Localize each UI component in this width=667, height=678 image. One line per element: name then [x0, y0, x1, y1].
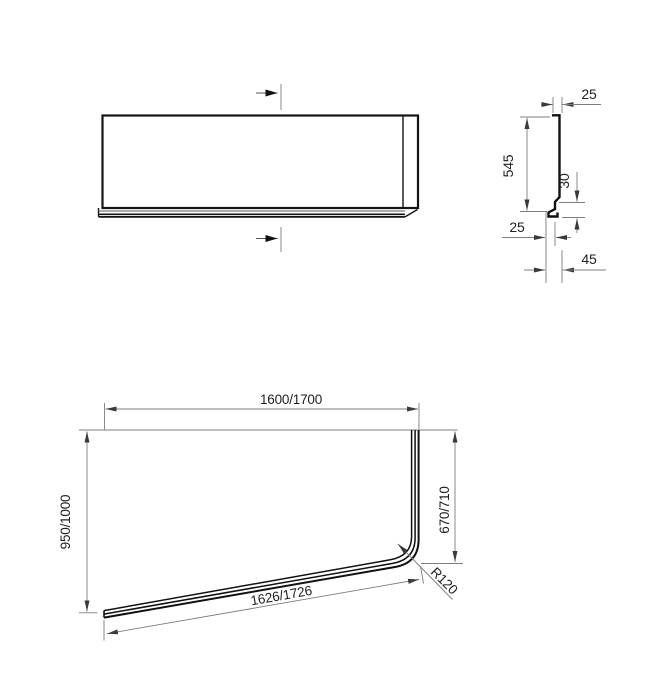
dim-profile-height: 545: [500, 117, 550, 212]
svg-text:R120: R120: [428, 564, 461, 597]
svg-text:670/710: 670/710: [437, 486, 452, 533]
svg-text:25: 25: [509, 219, 525, 235]
profile-view: 25 545 30 25: [500, 86, 606, 283]
svg-text:950/1000: 950/1000: [58, 495, 73, 550]
dim-plan-panel-length: 1626/1726: [104, 566, 424, 641]
svg-text:30: 30: [556, 173, 572, 189]
svg-text:45: 45: [581, 251, 597, 267]
svg-text:25: 25: [581, 86, 597, 102]
dim-plan-width: 950/1000: [58, 432, 98, 613]
front-view: [99, 84, 419, 252]
section-marker-top: [256, 84, 281, 110]
technical-drawing-page: 25 545 30 25: [0, 0, 667, 678]
dim-profile-top-width: 25: [541, 86, 601, 113]
dim-profile-foot-height: 30: [556, 172, 585, 233]
dim-profile-foot-offset: 25: [502, 212, 571, 283]
profile-section-outline: [549, 115, 560, 216]
section-marker-bottom: [256, 227, 281, 252]
plan-panel-outline: [104, 430, 419, 618]
dim-plan-corner-radius: R120: [398, 544, 461, 600]
svg-text:545: 545: [500, 154, 516, 177]
dim-plan-side: 670/710: [421, 432, 463, 564]
dim-plan-length: 1600/1700: [105, 392, 420, 430]
plan-view: 1600/1700 950/1000 670/710 1626/1726: [58, 392, 463, 641]
dim-profile-foot-depth: 45: [524, 250, 606, 283]
drawing-svg: 25 545 30 25: [0, 0, 667, 678]
svg-text:1600/1700: 1600/1700: [260, 392, 322, 407]
